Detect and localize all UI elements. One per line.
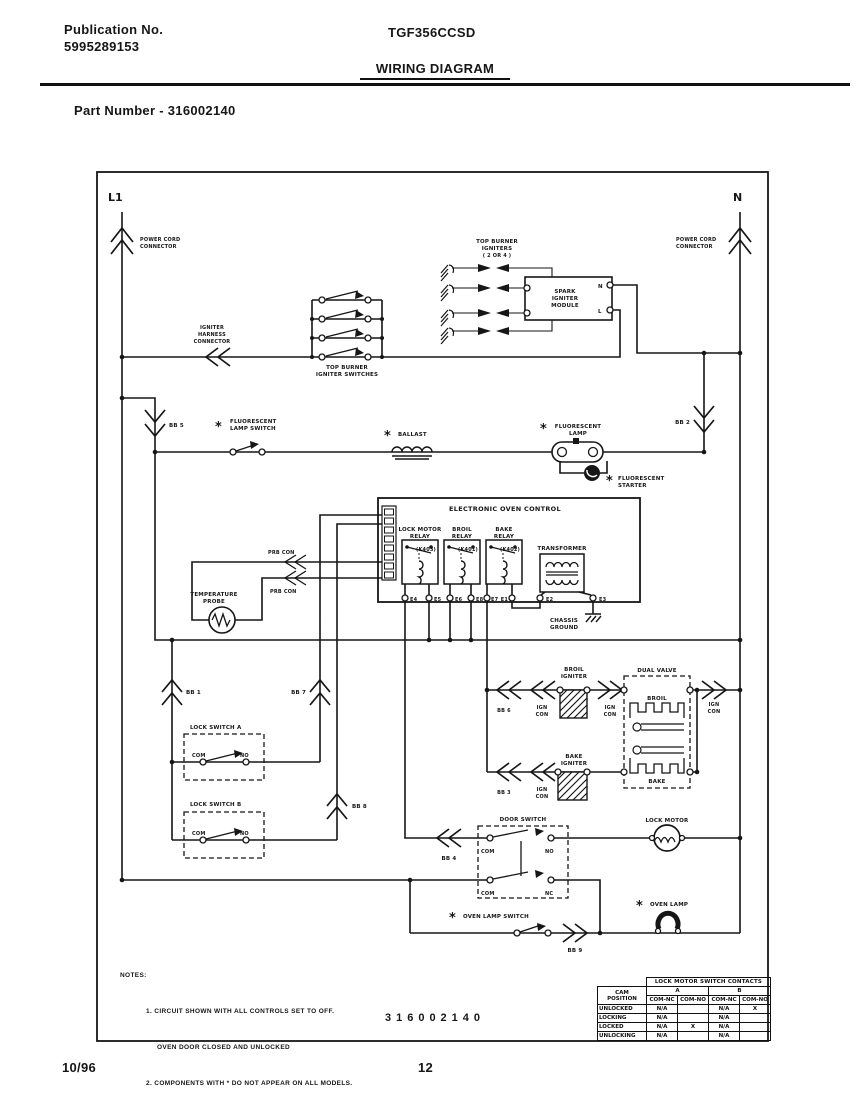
diagram-border — [97, 172, 768, 1041]
bb7-label: BB 7 — [291, 690, 306, 696]
n-label: N — [733, 191, 742, 204]
notes-block: NOTES: 1. CIRCUIT SHOWN WITH ALL CONTROL… — [120, 946, 353, 1101]
svg-text:MODULE: MODULE — [551, 303, 579, 309]
transformer-icon — [546, 563, 578, 585]
bb5-label: BB 5 — [169, 423, 184, 429]
svg-text:RELAY: RELAY — [452, 534, 473, 540]
group-b-header: B — [709, 987, 771, 996]
fluorescent-lamp-label: FLUORESCENT — [555, 424, 602, 430]
igniter-switches-label: TOP BURNER — [326, 365, 368, 371]
dual-valve-label: DUAL VALVE — [637, 668, 676, 674]
lock-motor-label: LOCK MOTOR — [645, 818, 689, 824]
table-row: LOCKING N/A N/A — [598, 1014, 771, 1023]
svg-text:RELAY: RELAY — [410, 534, 431, 540]
e8-label: E8 — [476, 597, 484, 603]
footer-date: 10/96 — [62, 1060, 96, 1075]
eoc-title: ELECTRONIC OVEN CONTROL — [449, 505, 561, 513]
chassis-ground-label: CHASSIS — [550, 618, 578, 624]
svg-text:COM: COM — [192, 753, 206, 759]
svg-text:COM: COM — [481, 891, 495, 897]
svg-text:LAMP SWITCH: LAMP SWITCH — [230, 426, 276, 432]
svg-text:CON: CON — [604, 712, 617, 718]
broil-valve-label: BROIL — [647, 696, 667, 702]
table-row: LOCKED N/A X N/A — [598, 1023, 771, 1032]
e5-label: E5 — [434, 597, 442, 603]
module-n-terminal-label: N — [598, 284, 603, 290]
prb-con-label: PRB CON — [268, 550, 295, 556]
ign-con-label: IGN — [537, 705, 548, 711]
ballast-coil-icon — [392, 447, 432, 459]
asterisk: * — [606, 474, 613, 489]
bb6-label: BB 6 — [497, 708, 511, 714]
svg-text:IGNITER: IGNITER — [561, 761, 588, 767]
svg-text:COM: COM — [481, 849, 495, 855]
svg-text:( 2 OR 4 ): ( 2 OR 4 ) — [483, 253, 512, 259]
lock-switch-b: LOCK SWITCH B COM NO — [184, 802, 264, 858]
door-switch: DOOR SWITCH COM NO COM NC — [478, 817, 568, 898]
asterisk: * — [449, 911, 456, 926]
svg-text:IGNITER: IGNITER — [552, 296, 579, 302]
asterisk: * — [540, 422, 547, 437]
e6-label: E6 — [455, 597, 463, 603]
bb3-label: BB 3 — [497, 790, 511, 796]
svg-text:LAMP: LAMP — [569, 431, 587, 437]
lock-motor: LOCK MOTOR — [645, 818, 689, 851]
note-line: 1. CIRCUIT SHOWN WITH ALL CONTROLS SET T… — [120, 1006, 353, 1018]
oven-lamp-switch-label: OVEN LAMP SWITCH — [463, 914, 529, 920]
wires — [122, 212, 740, 933]
broil-relay-label: BROIL — [452, 527, 472, 533]
bake-igniter: BAKE IGNITER — [558, 754, 588, 800]
fluorescent-starter-icon — [584, 465, 600, 481]
oven-lamp-icon — [658, 913, 678, 929]
k402-label: (K402) — [500, 547, 520, 553]
e2-label: E2 — [546, 597, 554, 603]
svg-text:CONNECTOR: CONNECTOR — [676, 244, 713, 250]
relay-coil-icon — [419, 561, 507, 584]
asterisk: * — [384, 429, 391, 444]
broil-igniter: BROIL IGNITER — [560, 667, 588, 718]
svg-text:IGNITER: IGNITER — [561, 674, 588, 680]
group-a-header: A — [647, 987, 709, 996]
svg-text:CON: CON — [536, 794, 549, 800]
e7-label: E7 — [491, 597, 499, 603]
transformer-label: TRANSFORMER — [537, 546, 587, 552]
power-cord-connector-label: POWER CORD — [140, 237, 180, 243]
e4-label: E4 — [410, 597, 418, 603]
svg-text:NO: NO — [240, 753, 249, 759]
svg-text:PROBE: PROBE — [203, 599, 225, 605]
dual-valve: DUAL VALVE BROIL BAKE — [624, 668, 690, 788]
svg-text:COM: COM — [192, 831, 206, 837]
wiring-diagram-canvas: TOP BURNER IGNITERS ( 2 OR 4 ) SPARK IGN… — [0, 0, 864, 1101]
lock-switch-a: LOCK SWITCH A COM NO — [184, 725, 264, 780]
svg-text:NO: NO — [240, 831, 249, 837]
fluorescent-lamp-switch-label: FLUORESCENT — [230, 419, 277, 425]
bb1-label: BB 1 — [186, 690, 201, 696]
ign-con-label: IGN — [709, 702, 720, 708]
bb9-label: BB 9 — [568, 948, 583, 954]
electronic-oven-control: ELECTRONIC OVEN CONTROL LOCK MOTOR RELAY — [378, 498, 640, 603]
table-row: UNLOCKED N/A N/A X — [598, 1005, 771, 1014]
lock-switch-a-label: LOCK SWITCH A — [190, 725, 242, 731]
fluorescent-starter-label: FLUORESCENT — [618, 476, 665, 482]
transformer-box — [540, 554, 584, 592]
bb2-label: BB 2 — [675, 420, 690, 426]
e1-label: E1 — [501, 597, 509, 603]
bb4-label: BB 4 — [442, 856, 457, 862]
table-title: LOCK MOTOR SWITCH CONTACTS — [647, 978, 771, 987]
svg-text:HARNESS: HARNESS — [198, 332, 226, 338]
bb8-label: BB 8 — [352, 804, 367, 810]
oven-lamp-circuit: * OVEN LAMP SWITCH * OVEN LAMP — [449, 899, 688, 932]
module-l-terminal-label: L — [598, 309, 602, 315]
spark-igniter-module: SPARK IGNITER MODULE N L — [525, 277, 612, 320]
lock-switch-b-label: LOCK SWITCH B — [190, 802, 241, 808]
svg-text:IGNITERS: IGNITERS — [482, 246, 513, 252]
lock-motor-relay-label: LOCK MOTOR — [398, 527, 442, 533]
temperature-probe-label: TEMPERATURE — [190, 592, 237, 598]
k403-label: (K403) — [416, 547, 436, 553]
bake-igniter-label: BAKE — [565, 754, 582, 760]
svg-text:NO: NO — [545, 849, 554, 855]
svg-text:CON: CON — [536, 712, 549, 718]
l1-label: L1 — [108, 191, 123, 204]
oven-lamp-label: OVEN LAMP — [650, 902, 688, 908]
note-line: OVEN DOOR CLOSED AND UNLOCKED — [120, 1042, 353, 1054]
note-line: 2. COMPONENTS WITH * DO NOT APPEAR ON AL… — [120, 1078, 353, 1090]
asterisk: * — [636, 899, 643, 914]
svg-text:IGNITER SWITCHES: IGNITER SWITCHES — [316, 372, 378, 378]
door-switch-label: DOOR SWITCH — [500, 817, 547, 823]
svg-text:CON: CON — [708, 709, 721, 715]
notes-heading: NOTES: — [120, 970, 353, 982]
svg-text:RELAY: RELAY — [494, 534, 515, 540]
ground-icon — [585, 614, 601, 622]
footer-page-number: 12 — [418, 1060, 433, 1075]
chassis-ground: CHASSIS GROUND — [550, 614, 601, 631]
cam-position-header: CAMPOSITION — [598, 987, 647, 1005]
svg-text:GROUND: GROUND — [550, 625, 578, 631]
diagram-number: 316002140 — [355, 1012, 515, 1024]
ign-con-label: IGN — [605, 705, 616, 711]
ballast-label: BALLAST — [398, 432, 427, 438]
svg-text:CONNECTOR: CONNECTOR — [194, 339, 231, 345]
prb-con-label: PRB CON — [270, 589, 297, 595]
scanned-wiring-diagram-page: Publication No. 5995289153 TGF356CCSD WI… — [0, 0, 864, 1101]
svg-text:CONNECTOR: CONNECTOR — [140, 244, 177, 250]
top-burner-igniters-label: TOP BURNER — [476, 239, 518, 245]
fluorescent-lamp-circuit: * FLUORESCENT LAMP SWITCH * BALLAST * FL… — [215, 419, 665, 489]
e3-label: E3 — [599, 597, 607, 603]
svg-text:NC: NC — [545, 891, 553, 897]
igniter-harness-label: IGNITER — [200, 325, 224, 331]
igniter-arrowheads — [478, 264, 509, 335]
power-cord-connector-label: POWER CORD — [676, 237, 716, 243]
bake-valve-label: BAKE — [648, 779, 665, 785]
bake-relay-label: BAKE — [495, 527, 512, 533]
lock-motor-switch-contacts-table: LOCK MOTOR SWITCH CONTACTS CAMPOSITION A… — [597, 977, 771, 1041]
svg-text:STARTER: STARTER — [618, 483, 647, 489]
ign-con-label: IGN — [537, 787, 548, 793]
top-burner-igniters: TOP BURNER IGNITERS ( 2 OR 4 ) — [441, 239, 518, 344]
asterisk: * — [215, 420, 222, 435]
svg-text:SPARK: SPARK — [554, 289, 576, 295]
table-row: UNLOCKING N/A N/A — [598, 1032, 771, 1041]
broil-igniter-label: BROIL — [564, 667, 584, 673]
k401-label: (K401) — [458, 547, 478, 553]
